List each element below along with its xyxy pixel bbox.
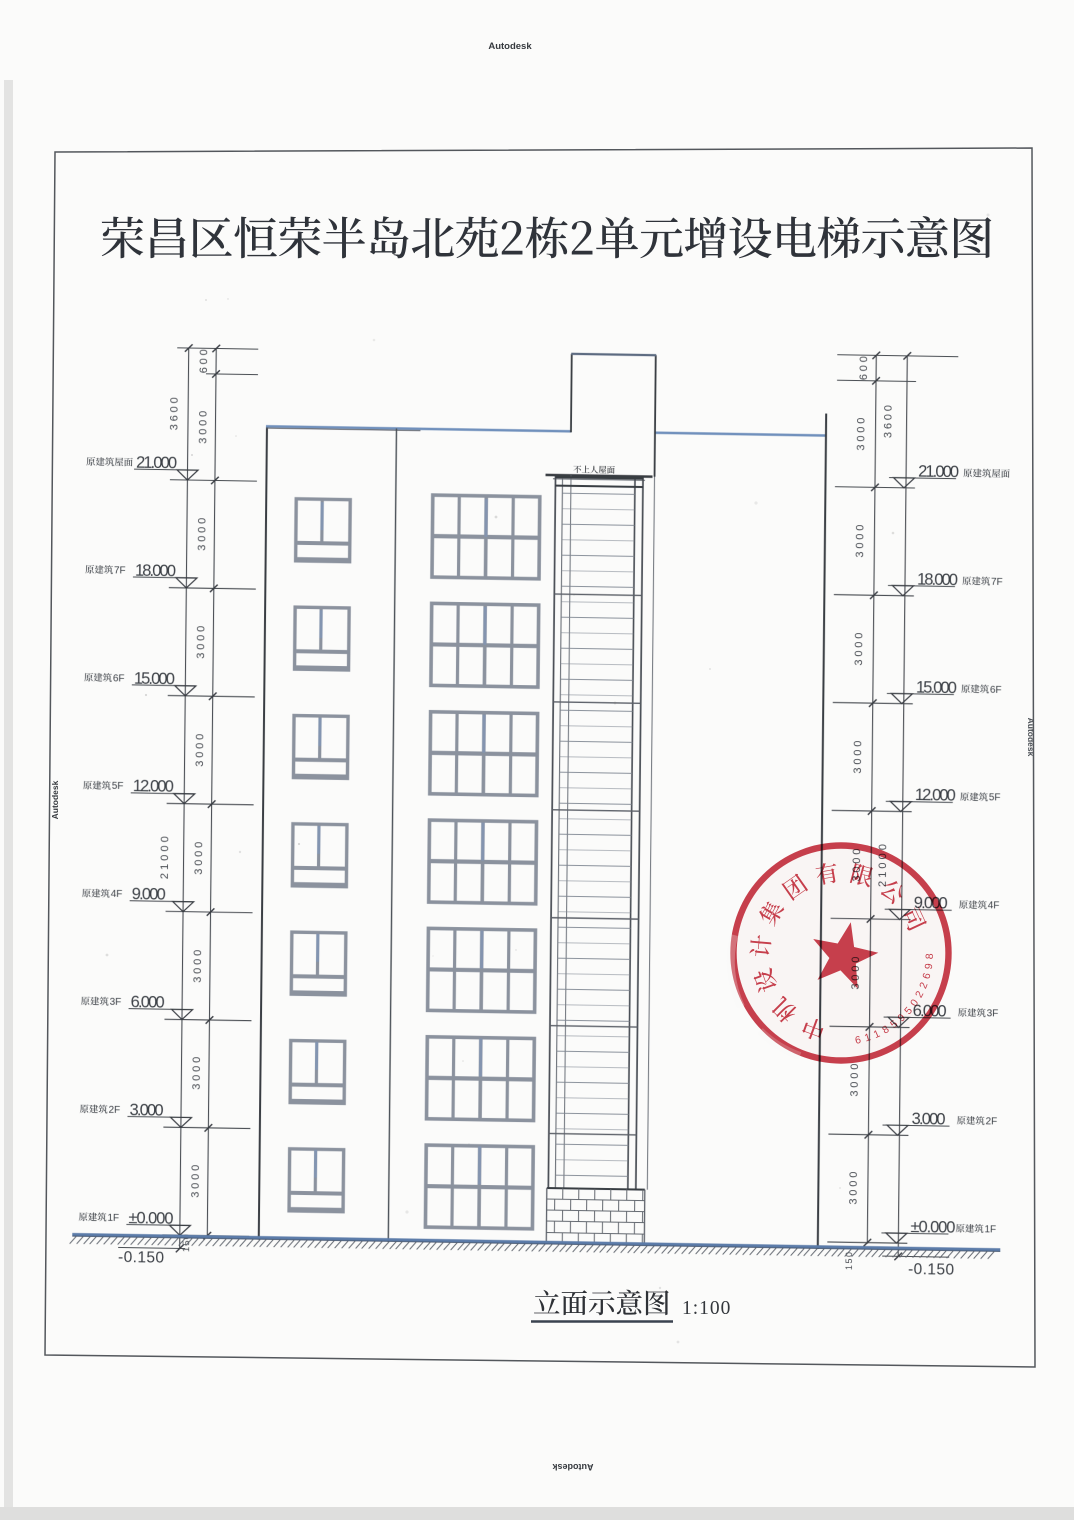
svg-text:150: 150 (844, 1252, 854, 1270)
svg-text:9.000: 9.000 (132, 885, 166, 904)
svg-text:600: 600 (858, 356, 870, 380)
svg-text:7F: 7F (991, 577, 1003, 588)
svg-text:4F: 4F (988, 900, 1000, 911)
svg-text:1:100: 1:100 (682, 1298, 731, 1319)
svg-text:600: 600 (198, 349, 210, 373)
svg-text:12.000: 12.000 (133, 777, 174, 796)
svg-text:Autodesk: Autodesk (552, 1462, 594, 1472)
svg-text:-0.150: -0.150 (908, 1261, 955, 1279)
svg-text:2F: 2F (108, 1105, 120, 1116)
svg-text:8: 8 (924, 953, 936, 959)
svg-text:3.000: 3.000 (129, 1101, 163, 1120)
svg-text:Autodesk: Autodesk (488, 41, 532, 52)
svg-text:Autodesk: Autodesk (1026, 718, 1036, 757)
svg-text:5F: 5F (989, 792, 1001, 803)
svg-text:5F: 5F (112, 781, 124, 792)
svg-text:1F: 1F (107, 1213, 119, 1224)
svg-text:6.000: 6.000 (131, 993, 165, 1012)
svg-text:Autodesk: Autodesk (50, 780, 60, 819)
svg-text:18.000: 18.000 (135, 562, 176, 581)
svg-text:3F: 3F (987, 1008, 999, 1019)
svg-text:21.000: 21.000 (136, 454, 177, 473)
svg-text:6F: 6F (990, 685, 1002, 696)
svg-text:3F: 3F (110, 997, 122, 1008)
svg-text:±0.000: ±0.000 (910, 1218, 955, 1237)
svg-text:1F: 1F (984, 1224, 996, 1235)
svg-text:15.000: 15.000 (916, 678, 957, 697)
svg-text:18.000: 18.000 (917, 570, 958, 589)
svg-text:6F: 6F (113, 673, 125, 684)
svg-text:7F: 7F (114, 565, 126, 576)
svg-text:21.000: 21.000 (918, 463, 959, 482)
svg-text:3.000: 3.000 (911, 1110, 945, 1129)
svg-text:2F: 2F (985, 1116, 997, 1127)
svg-text:4F: 4F (111, 889, 123, 900)
svg-text:±0.000: ±0.000 (128, 1209, 173, 1228)
svg-text:12.000: 12.000 (915, 786, 956, 805)
svg-text:15.000: 15.000 (134, 669, 175, 688)
svg-text:-0.150: -0.150 (118, 1249, 165, 1267)
